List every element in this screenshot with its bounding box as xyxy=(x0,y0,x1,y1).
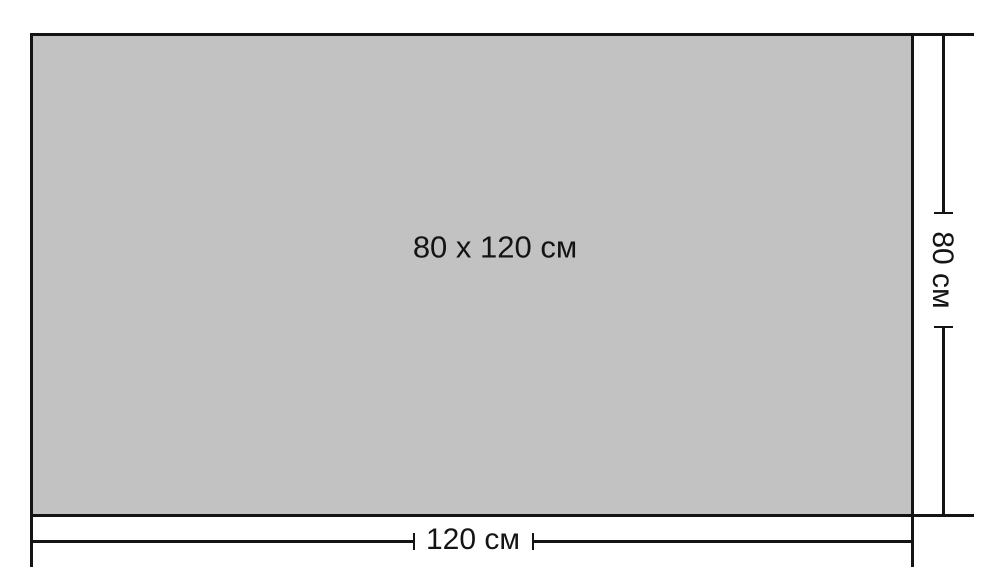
width-dimension-tick-right xyxy=(532,533,534,550)
height-dimension-label: 80 см xyxy=(927,231,957,308)
width-dimension-label: 120 см xyxy=(426,525,520,555)
width-dimension-tick-left xyxy=(413,533,415,550)
dimension-diagram: 80 x 120 см 120 см 80 см xyxy=(0,0,1000,582)
height-dimension-line-lower xyxy=(942,327,945,517)
height-dimension-tick-lower xyxy=(934,326,953,328)
height-dimension-tick-upper xyxy=(934,212,953,214)
height-dimension-line-upper xyxy=(942,33,945,214)
width-dimension-line-left xyxy=(31,540,414,543)
dimensioned-rectangle xyxy=(30,33,914,517)
width-dimension-line-right xyxy=(533,540,914,543)
rectangle-size-label: 80 x 120 см xyxy=(413,232,577,263)
